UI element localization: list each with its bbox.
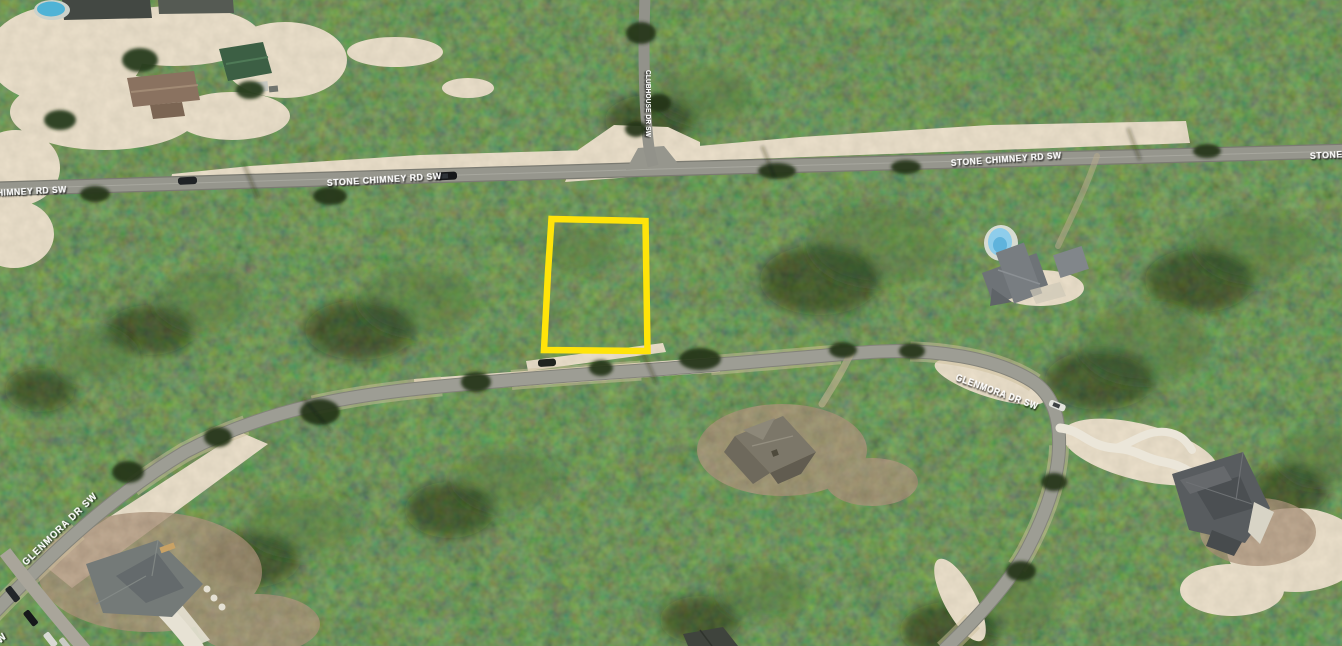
pool-top-left [37, 2, 65, 17]
satellite-map: HIMNEY RD SW STONE CHIMNEY RD SW STONE C… [0, 0, 1342, 646]
vehicle-dark-glenmora [538, 358, 556, 367]
house-wing [150, 102, 185, 119]
patio-pad [204, 586, 211, 593]
outbuilding [269, 85, 279, 92]
street-label-clubhouse: CLUBHOUSE DR SW [644, 70, 653, 138]
street-label-stone-chimney-right-partial: STONE [1310, 149, 1342, 162]
aerial-map-view: HIMNEY RD SW STONE CHIMNEY RD SW STONE C… [0, 0, 1342, 646]
patio-pad [219, 604, 226, 611]
roof-top-edge-a [62, 0, 152, 20]
vehicle-dark-stone-chimney-west [178, 176, 197, 184]
patio-pad [211, 595, 218, 602]
roof-top-edge-b [158, 0, 234, 14]
